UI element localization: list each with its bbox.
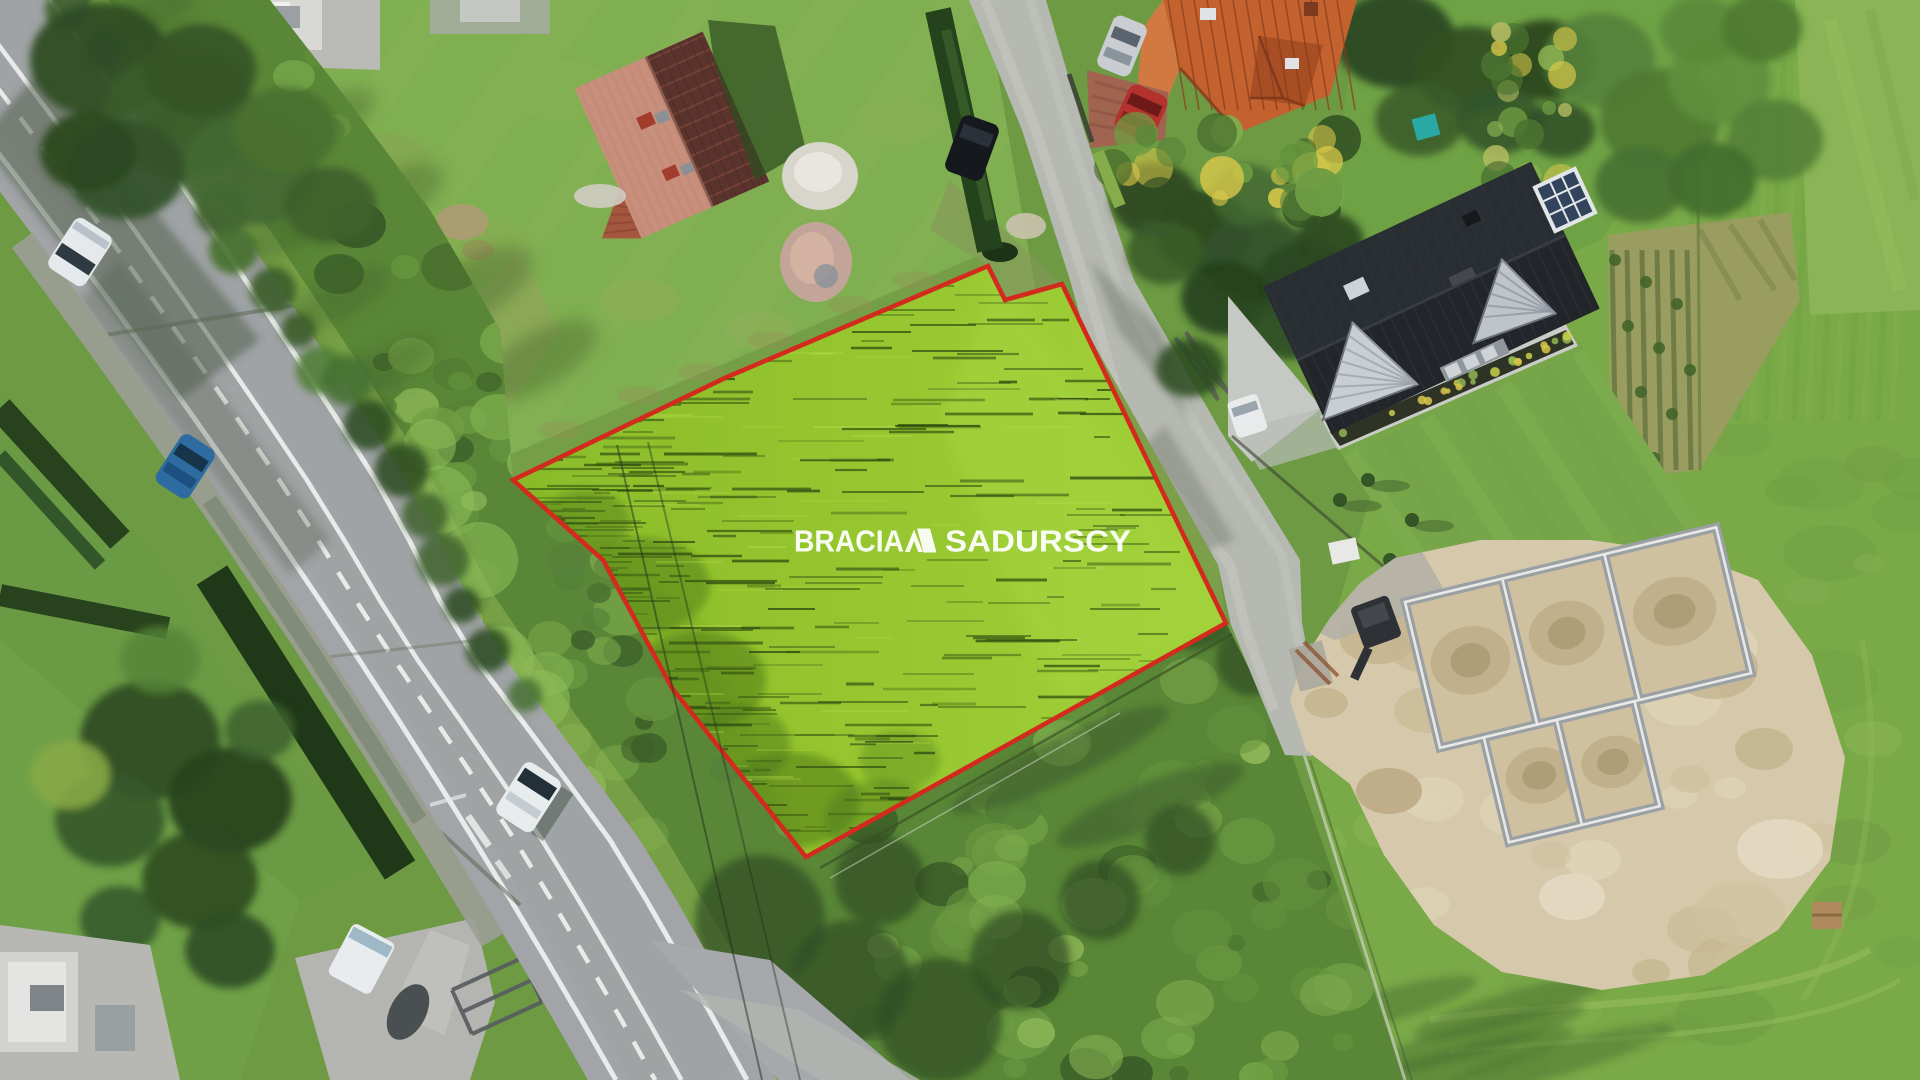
svg-text:BRACIA: BRACIA — [794, 524, 904, 559]
svg-text:SADURSCY: SADURSCY — [945, 524, 1131, 559]
